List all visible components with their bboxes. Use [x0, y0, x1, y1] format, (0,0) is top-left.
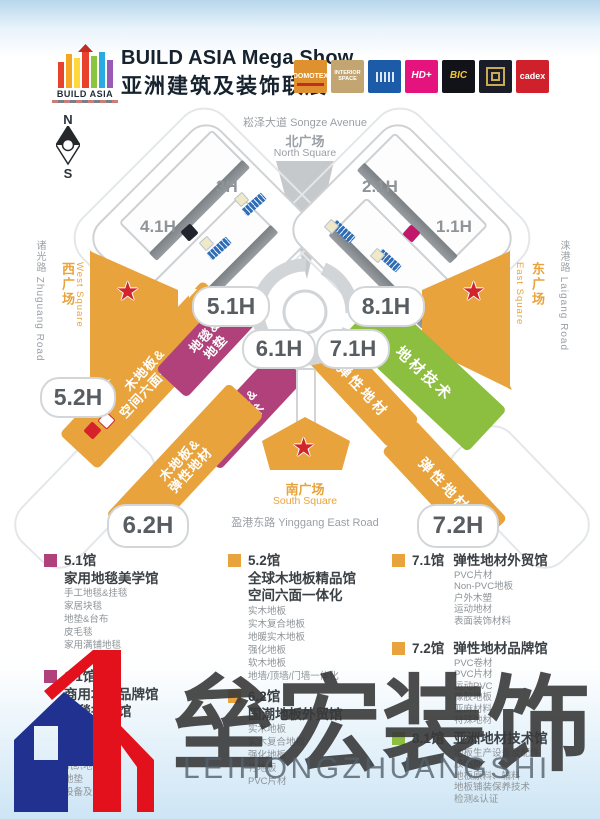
badge-blue-expo: [368, 60, 401, 93]
build-asia-logo-text: BUILD ASIA: [50, 89, 120, 99]
legend-hall-name: 空间六面一体化: [248, 587, 403, 605]
badge-domotex-label: DOMOTEX: [294, 73, 327, 80]
hall-pill-6-2h: 6.2H: [107, 504, 189, 548]
legend-color-square: [392, 554, 405, 567]
south-square-en: South Square: [230, 495, 380, 507]
compass-icon: [56, 126, 80, 166]
badge-bic-label: BIC: [450, 71, 467, 82]
legend-item: 户外木塑: [454, 593, 592, 605]
watermark-text-en: LEIHONGZHUANGSHI: [183, 752, 551, 786]
legend-hall-no: 7.1馆: [412, 552, 444, 570]
legend-color-square: [44, 554, 57, 567]
hall-pill-5-1h: 5.1H: [192, 286, 270, 327]
legend-item: 运动地材: [454, 604, 592, 616]
badge-interior-space: INTERIOR SPACE: [331, 60, 364, 93]
badge-glyph-lines-icon: [376, 72, 394, 82]
east-square-en: East Square: [514, 262, 525, 325]
hall-label-2-1h: 2.1H: [362, 177, 398, 197]
spiral-square-icon: [486, 67, 505, 86]
badge-hd-label: HD+: [411, 71, 431, 82]
legend-color-square: [228, 554, 241, 567]
hall-pill-5-2h: 5.2H: [40, 377, 116, 418]
badge-hd-plus: HD+: [405, 60, 438, 93]
hall-pill-8-1h: 8.1H: [347, 286, 425, 327]
legend-item: Non-PVC地板: [454, 581, 592, 593]
legend-hall-name: 全球木地板精品馆: [248, 570, 403, 588]
legend-block-7-1: 7.1馆 弹性地材外贸馆 PVC片材 Non-PVC地板 户外木塑 运动地材 表…: [392, 552, 592, 627]
legend-item: 实木地板: [248, 605, 403, 618]
hall-pill-7-1h: 7.1H: [316, 329, 390, 369]
legend-item: 表面装饰材料: [454, 616, 592, 628]
legend-item: 地垫&台布: [64, 613, 219, 626]
west-square-en: West Square: [74, 262, 85, 328]
legend-item: 检测&认证: [454, 794, 592, 806]
legend-item: PVC片材: [454, 570, 592, 582]
hall-label-4-1h: 4.1H: [140, 217, 176, 237]
hall-pill-6-1h: 6.1H: [242, 329, 316, 369]
hall-label-3h: 3H: [216, 177, 238, 197]
poster-page: BUILD ASIA BUILD ASIA Mega Show 亚洲建筑及装饰联…: [0, 0, 600, 819]
legend-block-5-1: 5.1馆 家用地毯美学馆 手工地毯&挂毯 家居块毯 地垫&台布 皮毛毯 家用满铺…: [44, 552, 219, 652]
east-square-cn: 东广场: [528, 262, 547, 307]
legend-item: 实木复合地板: [248, 618, 403, 631]
hall-label-1-1h: 1.1H: [436, 217, 472, 237]
legend-hall-name: 家用地毯美学馆: [64, 570, 219, 588]
legend-item-list: PVC片材 Non-PVC地板 户外木塑 运动地材 表面装饰材料: [454, 570, 592, 628]
legend-hall-no: 5.2馆: [248, 552, 403, 570]
badge-cadex: cadex: [516, 60, 549, 93]
legend-hall-name: 弹性地材外贸馆: [453, 552, 548, 570]
co-brand-badges: DOMOTEX INTERIOR SPACE HD+ BIC cadex: [294, 60, 549, 93]
badge-cadex-label: cadex: [520, 72, 546, 81]
legend-item: 家居块毯: [64, 600, 219, 613]
west-star-icon: ★: [116, 278, 139, 304]
badge-domotex: DOMOTEX: [294, 60, 327, 93]
badge-interior-label: INTERIOR SPACE: [331, 71, 364, 83]
legend-item: 手工地毯&挂毯: [64, 587, 219, 600]
hall-pill-7-2h: 7.2H: [417, 504, 499, 548]
laigang-road-label: 涞港路 Laigang Road: [556, 240, 571, 351]
badge-bic: BIC: [442, 60, 475, 93]
build-asia-logo-icon: [56, 44, 116, 88]
east-star-icon: ★: [462, 278, 485, 304]
logo-tagline-strip: [52, 100, 118, 103]
south-star-icon: ★: [292, 434, 315, 460]
yinggang-road-label: 盈港东路 Yinggang East Road: [170, 514, 440, 530]
legend-item: 皮毛毯: [64, 626, 219, 639]
legend-hall-no: 5.1馆: [64, 552, 219, 570]
zhuguang-road-label: 诸光路 Zhuguang Road: [32, 240, 47, 362]
compass-south-label: S: [56, 166, 80, 181]
badge-gold-spiral: [479, 60, 512, 93]
compass-north-label: N: [56, 112, 80, 127]
badge-stripe: [297, 83, 324, 86]
